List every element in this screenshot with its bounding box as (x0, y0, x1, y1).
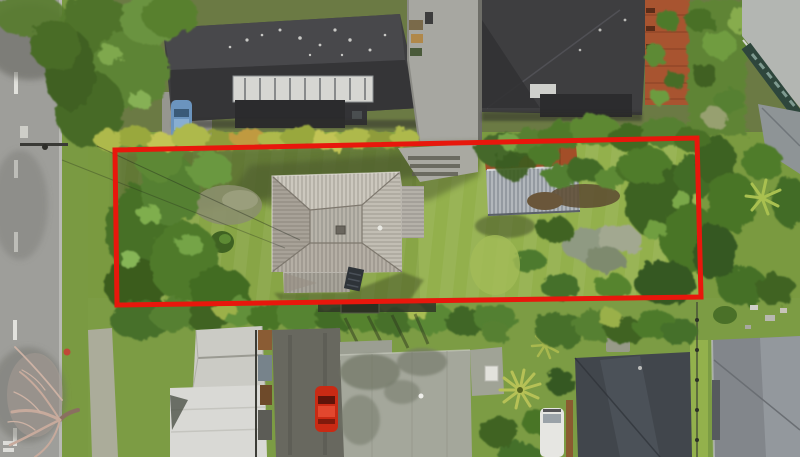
white-roof (170, 385, 267, 457)
soil-bed-2 (527, 192, 563, 210)
side-lawn-strip (690, 340, 708, 457)
roof-vent (352, 111, 362, 119)
chimney (336, 226, 345, 234)
slate-roof-speck (638, 366, 642, 370)
neighbour-house-top-left (162, 14, 422, 142)
terracotta-deck (645, 0, 690, 105)
shed-shadow (475, 214, 535, 238)
red-car (315, 386, 338, 432)
bare-tree-haze (7, 353, 63, 437)
lawn-path-light (470, 235, 520, 295)
eave-shadow-2 (482, 112, 642, 121)
shared-driveway (408, 0, 482, 147)
entry-steps (408, 156, 460, 176)
dirt-patch-light (222, 190, 258, 210)
palm-centre (517, 387, 523, 393)
neighbour-house-top-right (482, 0, 648, 121)
letterbox-figure (64, 349, 71, 356)
skylight-strip (233, 76, 373, 102)
roof-vent-dot (419, 394, 424, 399)
aerial-photo-canvas (0, 0, 800, 457)
garage-ribs (402, 186, 424, 238)
roof-vent-white (378, 226, 383, 231)
brown-fence (566, 400, 573, 457)
white-van (540, 408, 564, 457)
lawn-shrub-highlight (219, 234, 231, 244)
yard-clutter (258, 330, 272, 440)
grey-roof-sunlit (760, 336, 800, 457)
skylight-sage-roof (485, 366, 498, 381)
ribs-c (310, 205, 362, 243)
power-pole (42, 144, 48, 150)
boundary-wall (478, 0, 482, 140)
grey-house-wall (712, 380, 720, 440)
aerial-photo (0, 0, 800, 457)
